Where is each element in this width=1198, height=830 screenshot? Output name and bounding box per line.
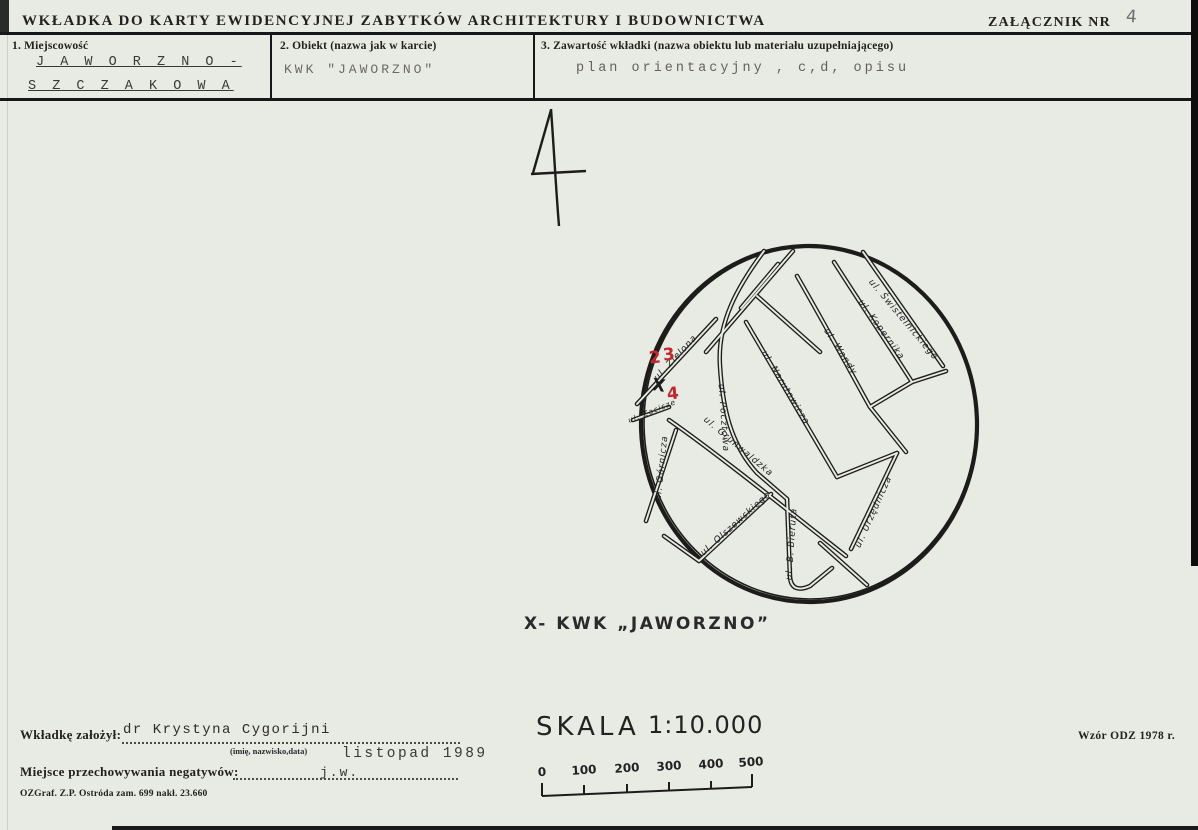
- negatives-value: j.w.: [320, 765, 359, 780]
- scale-tick-0: 0: [537, 765, 546, 780]
- map-caption: X- KWK „JAWORZNO”: [524, 614, 771, 634]
- record-card-insert-page: WKŁADKA DO KARTY EWIDENCYJNEJ ZABYTKÓW A…: [0, 0, 1198, 830]
- print-note: OZGraf. Z.P. Ostróda zam. 699 nakł. 23.6…: [20, 789, 208, 799]
- founder-dotted-line: [122, 741, 460, 744]
- red-mark-4: 4: [666, 383, 680, 404]
- founder-label: Wkładkę założył:: [20, 727, 121, 743]
- scale-ratio: 1:10.000: [648, 711, 763, 739]
- red-mark-2: 2: [648, 347, 662, 368]
- site-x-marker: X: [651, 375, 667, 397]
- scale-tick-300: 300: [656, 758, 682, 774]
- founder-date-value: listopad 1989: [342, 746, 488, 762]
- handwritten-figure-number: [531, 109, 586, 226]
- scale-label: SKALA: [536, 712, 640, 742]
- scale-tick-400: 400: [698, 756, 724, 772]
- negatives-label: Miejsce przechowywania negatywów:: [20, 764, 239, 780]
- scale-tick-500: 500: [738, 754, 764, 770]
- template-note: Wzór ODZ 1978 r.: [1078, 730, 1175, 742]
- scale-tick-200: 200: [614, 760, 640, 776]
- scale-tick-100: 100: [571, 762, 597, 778]
- red-mark-3: 3: [662, 344, 676, 365]
- hand-drawn-figure-layer: [0, 0, 1198, 830]
- founder-hint: (imię, nazwisko,data): [230, 746, 307, 756]
- founder-name-value: dr Krystyna Cygorijni: [123, 722, 331, 738]
